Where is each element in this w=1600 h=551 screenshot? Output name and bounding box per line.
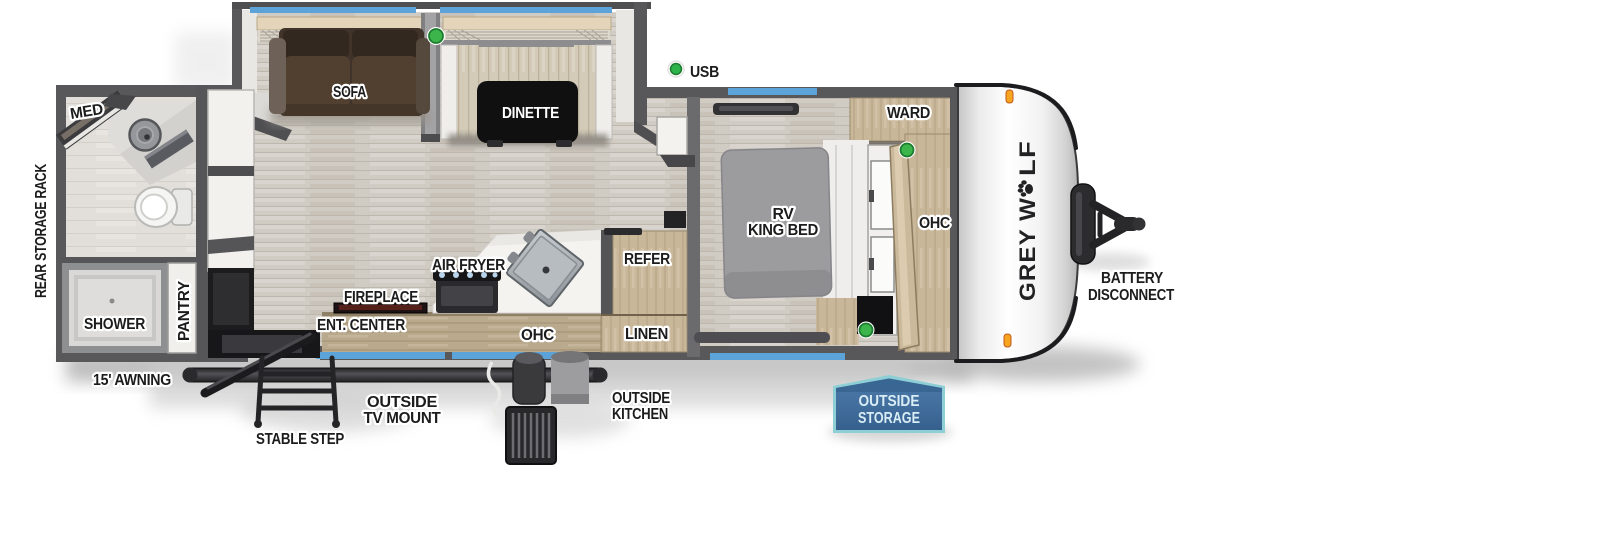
svg-text:SHOWER: SHOWER — [84, 316, 145, 333]
svg-text:OUTSIDE: OUTSIDE — [612, 390, 670, 407]
svg-text:OUTSIDE: OUTSIDE — [859, 393, 920, 410]
svg-text:LF: LF — [1015, 140, 1040, 176]
svg-text:AIR FRYER: AIR FRYER — [432, 257, 505, 274]
svg-text:OHC: OHC — [521, 327, 554, 344]
svg-text:KING BED: KING BED — [748, 222, 818, 239]
svg-text:ENT. CENTER: ENT. CENTER — [317, 317, 405, 334]
svg-text:15' AWNING: 15' AWNING — [93, 372, 171, 389]
svg-text:REAR STORAGE RACK: REAR STORAGE RACK — [33, 163, 50, 298]
svg-text:BATTERY: BATTERY — [1101, 270, 1164, 287]
svg-text:OHC: OHC — [919, 215, 950, 232]
svg-text:TV MOUNT: TV MOUNT — [364, 410, 442, 427]
svg-text:WARD: WARD — [887, 105, 930, 122]
svg-text:FIREPLACE: FIREPLACE — [344, 289, 418, 306]
svg-text:STABLE STEP: STABLE STEP — [256, 431, 344, 448]
svg-text:KITCHEN: KITCHEN — [612, 406, 668, 423]
svg-text:DINETTE: DINETTE — [502, 105, 559, 122]
svg-text:PANTRY: PANTRY — [176, 280, 193, 341]
svg-text:DISCONNECT: DISCONNECT — [1088, 287, 1175, 304]
svg-text:USB: USB — [690, 64, 719, 81]
svg-text:RV: RV — [773, 206, 795, 223]
svg-text:STORAGE: STORAGE — [858, 410, 920, 427]
svg-text:GREY W: GREY W — [1015, 197, 1040, 301]
svg-text:OUTSIDE: OUTSIDE — [367, 394, 437, 411]
svg-text:REFER: REFER — [624, 251, 670, 268]
svg-text:LINEN: LINEN — [625, 326, 668, 343]
svg-text:SOFA: SOFA — [333, 84, 366, 101]
